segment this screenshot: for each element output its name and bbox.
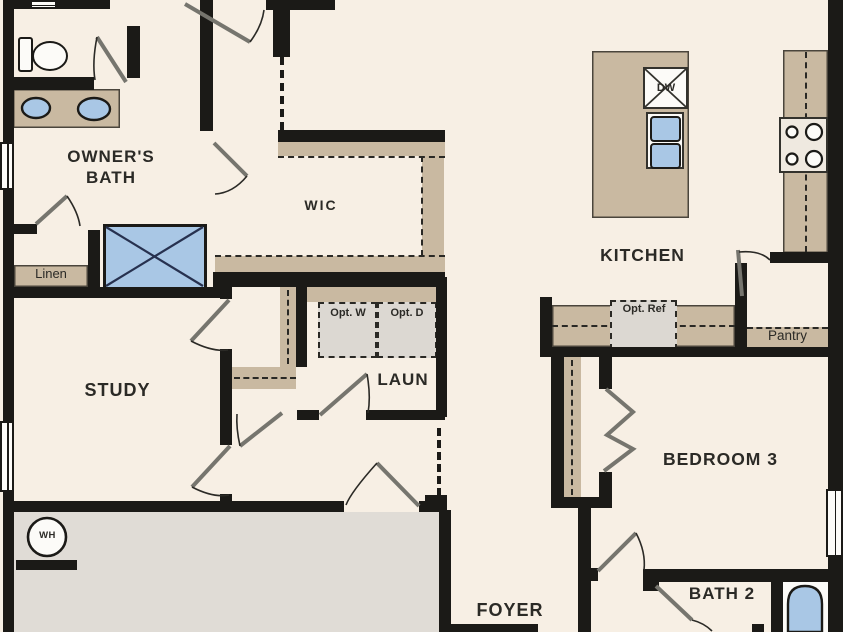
garage-floor (14, 512, 439, 632)
wall (296, 285, 307, 367)
room-label-bedroom3: BEDROOM 3 (618, 449, 823, 471)
label-dishwasher: DW (650, 82, 682, 95)
wall-exterior-left (3, 492, 14, 632)
label-optional-dryer: Opt. D (386, 307, 428, 320)
cased-opening-foyer (437, 428, 441, 496)
shower (103, 224, 207, 290)
closet-label-linen: Linen (16, 266, 86, 282)
wic-rod-top (278, 156, 445, 158)
wall (3, 501, 344, 512)
wic-shelf-right (422, 142, 444, 256)
toilet-tank (19, 38, 32, 71)
wall (273, 0, 290, 57)
wall (578, 568, 598, 581)
door-bedroom3-hall (598, 533, 644, 571)
vanity-counter (13, 89, 120, 128)
wic-rod-bottom (215, 255, 445, 257)
room-label-bath2: BATH 2 (687, 583, 757, 604)
door-toilet-room (94, 37, 126, 82)
wall (366, 410, 445, 420)
wall (643, 580, 659, 591)
wall (297, 410, 319, 420)
wall (12, 0, 30, 9)
wall (436, 277, 447, 417)
wall-exterior-left (3, 0, 14, 142)
wall (220, 349, 232, 445)
window (30, 0, 57, 9)
wall (552, 497, 612, 508)
wall-exterior-right (828, 557, 843, 632)
wall (752, 624, 764, 632)
room-label-foyer: FOYER (460, 599, 560, 622)
wall (213, 272, 445, 287)
label-optional-washer: Opt. W (327, 307, 369, 320)
room-label-owners-bath: OWNER'S BATH (48, 146, 174, 189)
wall (10, 77, 94, 90)
bedroom3-closet-floor (581, 357, 599, 497)
window (0, 421, 14, 492)
room-label-kitchen: KITCHEN (585, 245, 700, 267)
wall (278, 130, 445, 142)
wall (88, 230, 100, 290)
kitchen-sink-unit (646, 112, 684, 169)
window (0, 142, 14, 190)
cased-opening-hall (280, 57, 284, 130)
room-label-study: STUDY (70, 379, 165, 402)
door-hall-closet (237, 413, 282, 446)
laundry-counter (305, 287, 442, 302)
wall (57, 0, 110, 9)
door-laundry (320, 374, 369, 415)
window-glass-line (32, 5, 55, 7)
wall (419, 501, 447, 512)
room-label-wic: WIC (293, 197, 349, 215)
wall (599, 357, 612, 389)
wic-rod-right (421, 156, 423, 256)
wic-shelf-bottom (215, 256, 445, 273)
door-study-lower (192, 446, 230, 496)
bedroom3-closet-rod (571, 360, 573, 495)
door-owner-bedroom (185, 4, 264, 42)
window-glass-line (835, 491, 837, 555)
wall (440, 624, 538, 632)
wall (439, 510, 451, 632)
wall (200, 0, 213, 131)
wall (770, 252, 828, 263)
floor-plan: OWNER'S BATH WIC KITCHEN STUDY LAUN BEDR… (0, 0, 843, 632)
wall-water-heater-nook (16, 560, 77, 570)
door-garage (346, 463, 419, 506)
wall-exterior-right (828, 0, 843, 347)
window (826, 489, 843, 557)
wall (771, 577, 783, 632)
toilet-bowl (33, 42, 67, 70)
wall (220, 285, 232, 299)
closet-label-pantry: Pantry (750, 328, 825, 345)
wall (540, 297, 552, 357)
hall-cabinet-line (287, 290, 289, 364)
door-study-upper (191, 300, 229, 350)
wall (127, 26, 140, 78)
wall (643, 569, 828, 582)
room-label-laundry: LAUN (364, 369, 442, 390)
door-linen (36, 196, 80, 226)
wic-shelf-top (278, 142, 445, 156)
wall (548, 347, 843, 357)
wall (10, 224, 37, 234)
cooktop-pad (779, 117, 828, 173)
wall (3, 287, 228, 298)
window-glass-line (7, 423, 9, 490)
wall (551, 357, 564, 508)
tub-niche (783, 578, 828, 632)
window-glass-line (7, 144, 9, 188)
wall (735, 263, 747, 347)
door-wic (214, 143, 247, 194)
label-optional-fridge: Opt. Ref (621, 303, 667, 316)
wall-exterior-right (828, 357, 843, 489)
label-water-heater: WH (33, 530, 62, 542)
hall-closet-rod (234, 377, 296, 379)
